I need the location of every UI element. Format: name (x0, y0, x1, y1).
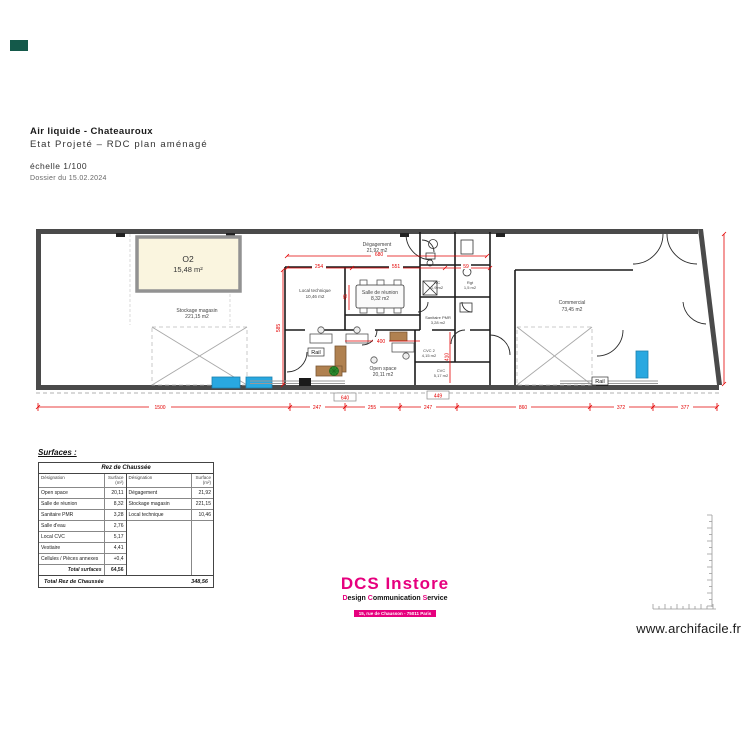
svg-text:254: 254 (315, 264, 324, 270)
corner-color-mark (10, 40, 28, 51)
table-row: Local CVC5,17 (39, 532, 126, 543)
dcs-logo-title: DCS Instore (305, 574, 485, 594)
svg-text:377: 377 (681, 405, 690, 411)
surfaces-right-column: Désignation Surface (m²) Dégagement21,92… (126, 474, 214, 575)
surfaces-table: Rez de Chaussée Désignation Surface (m²)… (38, 462, 214, 588)
room-degagement-area: 21,92 m2 (367, 248, 388, 254)
dcs-logo-subtitle: Design Communication Service (305, 595, 485, 602)
room-salle-reunion-area: 8,32 m2 (371, 296, 389, 302)
room-stockage-area: 221,15 m2 (185, 314, 209, 320)
svg-text:1500: 1500 (154, 405, 165, 411)
room-local-technique-area: 10,46 m2 (306, 294, 325, 299)
surfaces-footer: Total Rez de Chaussée 348,56 (39, 575, 213, 587)
footer-total-value: 348,56 (191, 579, 208, 585)
room-sanitaire-area: 3,28 m2 (431, 320, 446, 325)
hatched-zone-left (152, 327, 247, 385)
footer-total-label: Total Rez de Chaussée (44, 579, 104, 585)
table-row: Cellules / Pièces annexes+0,4 (39, 554, 126, 565)
project-subtitle: Etat Projeté – RDC plan aménagé (30, 140, 208, 151)
svg-text:449: 449 (434, 394, 443, 400)
svg-text:410: 410 (445, 353, 451, 362)
svg-text:372: 372 (617, 405, 626, 411)
project-title: Air liquide - Chateauroux (30, 127, 208, 138)
surfaces-left-column: Désignation Surface (m²) Open space20,11… (39, 474, 126, 575)
svg-text:45: 45 (343, 294, 349, 300)
table-row: Dégagement21,92 (127, 488, 214, 499)
surfaces-section: Surfaces : Rez de Chaussée Désignation S… (38, 448, 214, 588)
rail-label-1: Rail (311, 350, 320, 356)
sanitary-fixtures (423, 240, 473, 313)
table-row: Salle d'eau2,76 (39, 521, 126, 532)
svg-text:585: 585 (276, 324, 282, 333)
room-commercial-area: 73,45 m2 (562, 307, 583, 313)
room-commercial-name: Commercial (559, 300, 586, 306)
room-cvc-area: 5,17 m2 (434, 373, 449, 378)
table-row: Sanitaire PMR3,28 (39, 510, 126, 521)
hatched-zone-right (517, 327, 592, 385)
svg-text:640: 640 (341, 396, 350, 402)
vertical-ruler (707, 515, 712, 607)
total-surfaces-row: Total surfaces64,56 (39, 565, 126, 575)
scale-label: échelle 1/100 (30, 162, 208, 172)
room-wc-area: 1,9 m2 (431, 285, 444, 290)
col-header-designation: Désignation (127, 474, 193, 487)
svg-text:255: 255 (368, 405, 377, 411)
archifacile-url[interactable]: www.archifacile.fr (636, 621, 741, 636)
rail-label-2: Rail (595, 379, 604, 385)
room-cvc2-area: 4,15 m2 (422, 353, 437, 358)
col-header-surface: Surface (m²) (192, 474, 213, 487)
room-rgt-area: 1,5 m2 (464, 285, 477, 290)
surfaces-table-title: Rez de Chaussée (39, 463, 213, 474)
svg-text:247: 247 (313, 405, 322, 411)
svg-text:400: 400 (377, 339, 386, 345)
table-empty-space (127, 521, 214, 575)
rail-labels: Rail Rail (308, 348, 608, 385)
dcs-logo-address: 15, rue de Chausson - 75011 Paris (354, 610, 437, 617)
table-row: Stockage magasin221,15 (127, 499, 214, 510)
table-row: Open space20,11 (39, 488, 126, 499)
svg-text:860: 860 (519, 405, 528, 411)
svg-text:247: 247 (424, 405, 433, 411)
dcs-logo: DCS Instore Design Communication Service… (305, 574, 485, 620)
table-row: Vestiaire4,41 (39, 543, 126, 554)
horizontal-ruler (653, 604, 716, 609)
table-row: Salle de réunion8,32 (39, 499, 126, 510)
col-header-surface: Surface (m²) (105, 474, 126, 487)
dossier-date: Dossier du 15.02.2024 (30, 175, 208, 183)
svg-text:59: 59 (463, 264, 469, 270)
table-row: Local technique10,46 (127, 510, 214, 521)
svg-text:551: 551 (392, 264, 401, 270)
title-block: Air liquide - Chateauroux Etat Projeté –… (30, 127, 208, 183)
room-local-technique-name: Local technique (299, 288, 331, 293)
room-open-space-area: 20,11 m2 (373, 372, 394, 378)
room-o2-area: 15,48 m² (173, 265, 203, 274)
surfaces-title: Surfaces : (38, 448, 214, 457)
room-o2: O2 15,48 m² (137, 237, 240, 291)
room-o2-name: O2 (182, 254, 194, 264)
floor-plan: O2 15,48 m² (0, 0, 750, 750)
col-header-designation: Désignation (39, 474, 105, 487)
